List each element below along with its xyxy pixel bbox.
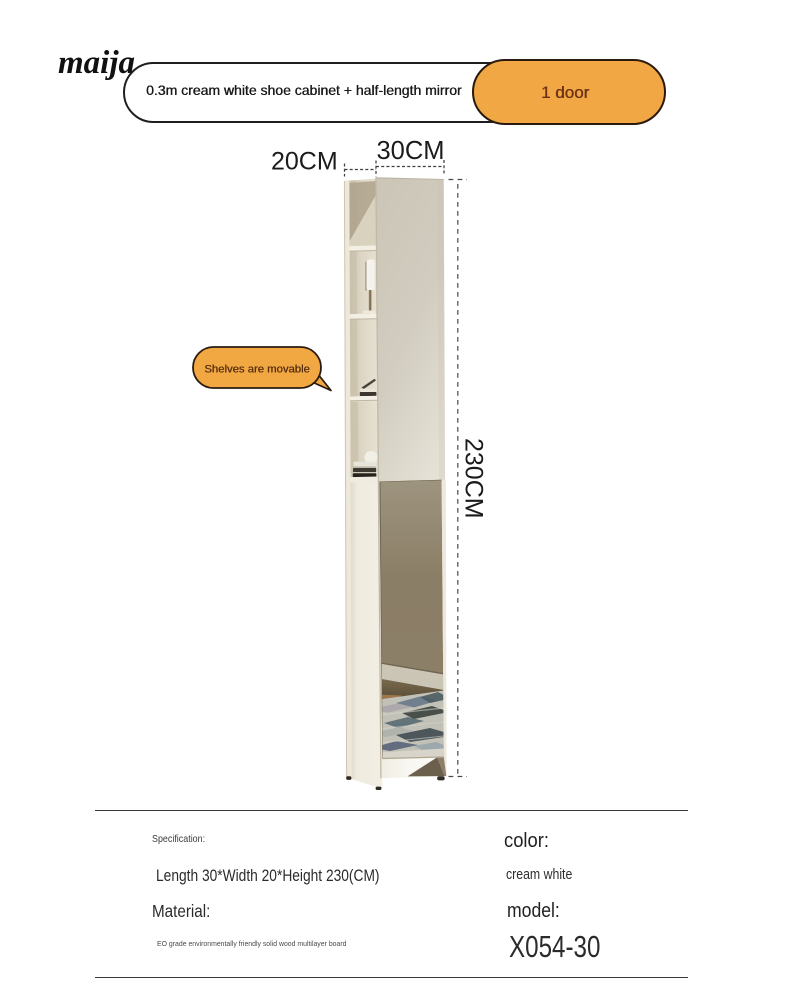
svg-text:20CM: 20CM — [271, 148, 338, 176]
svg-text:Shelves are movable: Shelves are movable — [204, 364, 310, 376]
svg-text:30CM: 30CM — [377, 137, 445, 165]
svg-text:230CM: 230CM — [460, 438, 488, 519]
